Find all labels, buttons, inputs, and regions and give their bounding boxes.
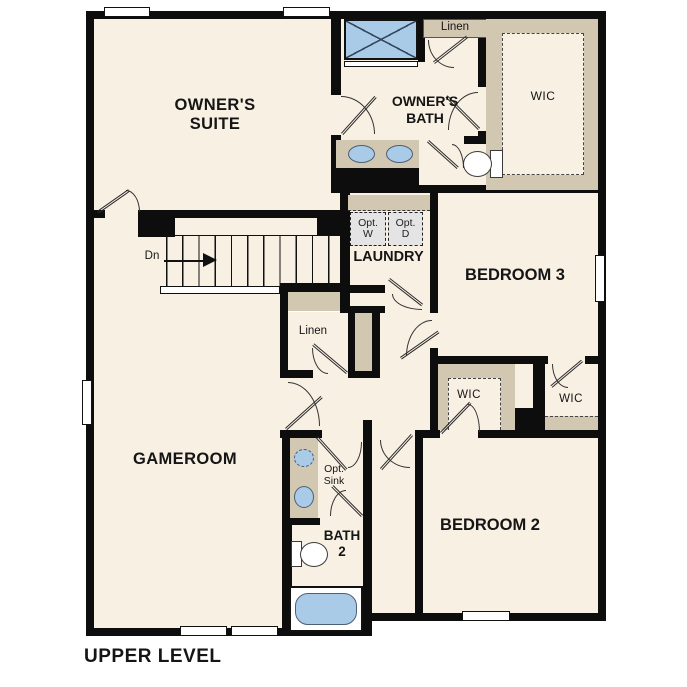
- owners-wic-label: WIC: [502, 89, 584, 104]
- bedroom3-label: BEDROOM 3: [425, 266, 605, 286]
- optional-washer: Opt. W: [350, 212, 386, 246]
- exterior-wall-right: [598, 11, 606, 621]
- shower-ledge: [344, 61, 418, 67]
- linen-hall-right-wall: [348, 313, 355, 378]
- hall-chase-right-wall: [372, 310, 380, 378]
- window-gameroom-left: [82, 380, 92, 425]
- window-suite-top-2: [283, 7, 330, 17]
- wic-strip-bottom-wall-right: [478, 430, 606, 438]
- wic-bedroom3-shelf: [545, 416, 598, 430]
- linen-hall-shelf: [288, 292, 340, 312]
- stairs-down-arrow-head: [203, 253, 217, 267]
- owners-toilet-bowl: [463, 151, 492, 177]
- gameroom-label: GAMEROOM: [95, 449, 275, 471]
- owners-suite-label: OWNER'S SUITE: [125, 93, 305, 137]
- laundry-label: LAUNDRY: [336, 250, 441, 266]
- shower: [344, 19, 418, 60]
- stair-post-left: [138, 210, 175, 237]
- stairs-rail: [160, 286, 280, 294]
- linen-hall-label: Linen: [283, 324, 343, 339]
- bedroom3-bottom-wall-left: [430, 356, 548, 364]
- owners-vanity-sink-right: [386, 145, 413, 163]
- wic-strip-bottom-wall-left: [415, 430, 440, 438]
- wic-bedroom2-shelf-left: [438, 378, 448, 430]
- window-gameroom-bottom-1: [180, 626, 227, 636]
- floor-plan: Dn Linen WIC Opt. W Opt. D Linen WIC WIC…: [0, 0, 687, 687]
- hall-chase: [355, 313, 372, 371]
- bath2-sink: [294, 486, 314, 508]
- exterior-wall-top: [86, 11, 606, 19]
- bath2-sink-divider-wall: [284, 518, 320, 525]
- wic-bedroom3-label: WIC: [543, 393, 599, 407]
- wic-bedroom2-shelf-top: [438, 364, 515, 378]
- linen-hall-bottom-wall: [280, 370, 313, 378]
- suite-bath-wall-upper: [331, 11, 341, 95]
- owners-bath-label: OWNER'S BATH: [355, 90, 495, 130]
- laundry-shelf: [348, 195, 430, 211]
- owners-vanity-sink-left: [348, 145, 375, 163]
- bath2-optional-sink: [294, 449, 314, 467]
- owners-wic-floor: [502, 33, 584, 175]
- window-suite-top-1: [104, 7, 150, 17]
- exterior-wall-left: [86, 11, 94, 636]
- bath2-right-wall: [363, 420, 372, 628]
- window-gameroom-bottom-2: [231, 626, 278, 636]
- laundry-bottom-wall: [350, 285, 385, 293]
- page-title: UPPER LEVEL: [84, 644, 324, 670]
- stairs-down-arrow-line: [164, 260, 204, 262]
- hall-chase-bottom-wall: [348, 371, 380, 378]
- bedroom3-bottom-wall-right: [585, 356, 598, 364]
- bath2-tub: [295, 593, 357, 625]
- linen-top-label: Linen: [423, 20, 487, 36]
- bath2-label: BATH 2: [317, 526, 367, 561]
- bedroom2-label: BEDROOM 2: [400, 515, 580, 537]
- wic-bedroom2-shelf-right: [501, 378, 515, 430]
- stairs-down-label: Dn: [140, 250, 164, 264]
- window-bedroom2-bottom: [462, 611, 510, 621]
- bottom-right-notch-mask: [372, 621, 608, 637]
- optional-dryer: Opt. D: [388, 212, 423, 246]
